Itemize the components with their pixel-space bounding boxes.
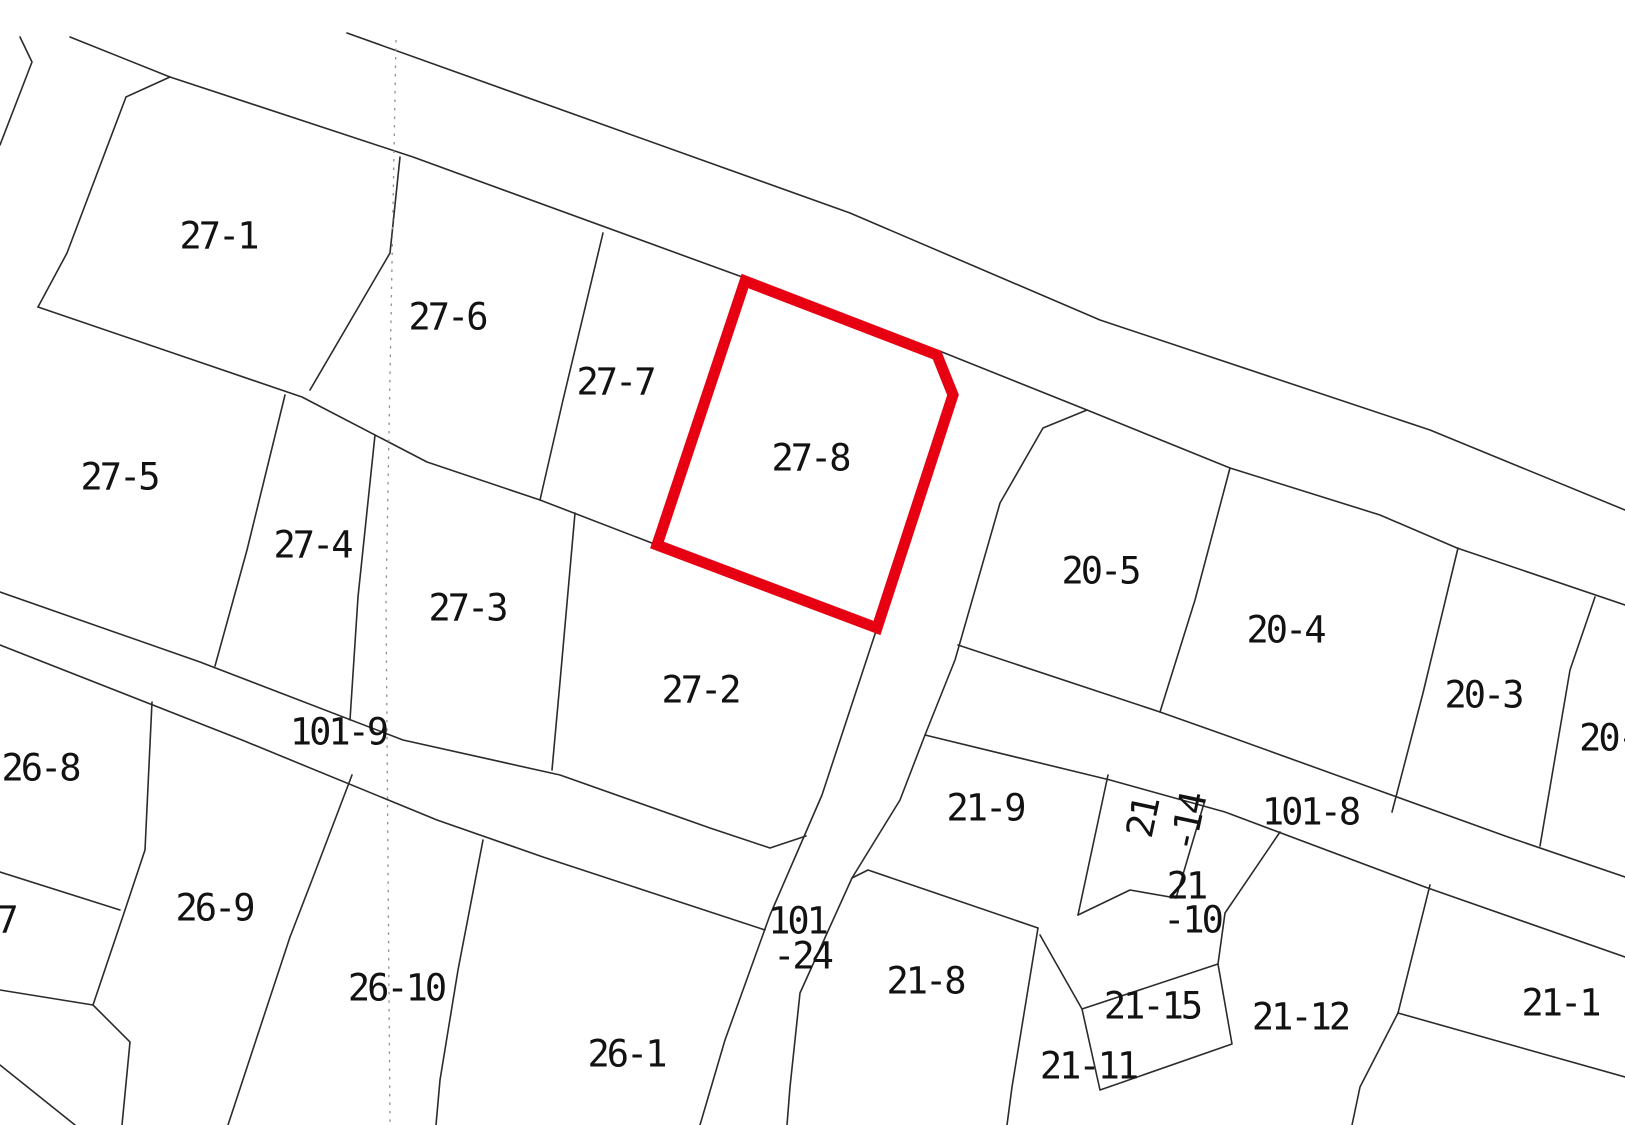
parcel-label-21-15: 21-15 — [1104, 985, 1201, 1028]
parcel-boundary-line-14 — [958, 645, 1625, 877]
parcel-boundary-line-15 — [925, 735, 1625, 957]
parcel-boundary-line-2 — [0, 37, 32, 145]
parcel-label-21-9: 21-9 — [946, 787, 1024, 830]
parcel-label-21-1: 21-1 — [1521, 982, 1599, 1025]
parcel-label-27-4: 27-4 — [273, 524, 352, 567]
parcel-label-21-12: 21-12 — [1252, 996, 1349, 1039]
parcel-boundary-line-19 — [852, 870, 1038, 928]
parcel-boundary-line-0 — [347, 33, 1625, 510]
parcel-label-21-11: 21-11 — [1040, 1045, 1137, 1088]
parcel-boundary-line-33 — [0, 990, 93, 1005]
parcel-label-27-6: 27-6 — [408, 296, 486, 339]
parcel-boundary-line-26 — [1218, 832, 1280, 964]
parcel-boundary-line-31 — [93, 702, 152, 1005]
parcel-boundary-line-3 — [38, 77, 170, 307]
parcel-label-27-2: 27-2 — [661, 669, 739, 712]
parcel-boundary-line-27 — [1398, 885, 1430, 1013]
parcel-label-27-1: 27-1 — [179, 215, 257, 258]
parcel-label-27-7: 27-7 — [576, 361, 654, 404]
parcel-label-27-3: 27-3 — [428, 587, 506, 630]
parcel-label-21-14-line1: 21 — [1118, 794, 1168, 841]
parcel-boundary-line-32 — [93, 1005, 130, 1125]
parcel-boundary-line-9 — [552, 513, 575, 770]
parcel-boundary-line-29 — [1352, 1013, 1398, 1125]
parcel-label-21-14-line2: -14 — [1161, 789, 1215, 856]
map-canvas: 27-127-627-727-827-527-427-327-2101-926-… — [0, 0, 1625, 1125]
parcel-boundary-line-21 — [1040, 935, 1082, 1009]
parcel-label-26-9: 26-9 — [175, 887, 253, 930]
parcel-boundary-line-10 — [0, 592, 806, 848]
parcel-label-20-4: 20-4 — [1246, 609, 1325, 652]
parcel-boundary-line-5 — [310, 157, 400, 390]
parcel-label-7: 7 — [0, 899, 16, 942]
parcel-label-20-3: 20-3 — [1444, 674, 1522, 717]
parcel-label-20-edge: 20- — [1579, 717, 1625, 760]
parcel-boundary-line-25 — [1078, 890, 1176, 915]
parcel-label-21-8: 21-8 — [886, 960, 964, 1003]
parcel-boundary-line-16 — [1160, 468, 1230, 712]
parcel-boundary-line-34 — [0, 1065, 75, 1125]
parcel-boundary-line-35 — [228, 775, 352, 1125]
parcel-boundary-line-30 — [0, 872, 120, 910]
parcel-label-27-8: 27-8 — [771, 437, 849, 480]
parcel-label-21-10-line2: -10 — [1163, 899, 1222, 942]
parcel-label-26-8: 26-8 — [1, 747, 79, 790]
parcel-boundary-line-13 — [787, 410, 1087, 1125]
parcel-label-26-1: 26-1 — [587, 1033, 665, 1076]
road-label-101-8: 101-8 — [1262, 791, 1359, 834]
parcel-boundary-line-11 — [0, 645, 765, 930]
cadastral-map: 27-127-627-727-827-527-427-327-2101-926-… — [0, 0, 1625, 1125]
road-label-101-9: 101-9 — [290, 711, 387, 754]
parcel-label-20-5: 20-5 — [1061, 550, 1139, 593]
road-label-101-24-line2: -24 — [773, 935, 833, 978]
parcel-label-27-5: 27-5 — [80, 456, 158, 499]
parcel-boundary-line-4 — [38, 307, 657, 545]
parcel-label-26-10: 26-10 — [348, 967, 445, 1010]
parcel-boundary-line-23 — [1078, 775, 1108, 915]
parcel-boundary-line-8 — [350, 435, 375, 720]
parcel-boundary-line-20 — [1007, 928, 1038, 1125]
